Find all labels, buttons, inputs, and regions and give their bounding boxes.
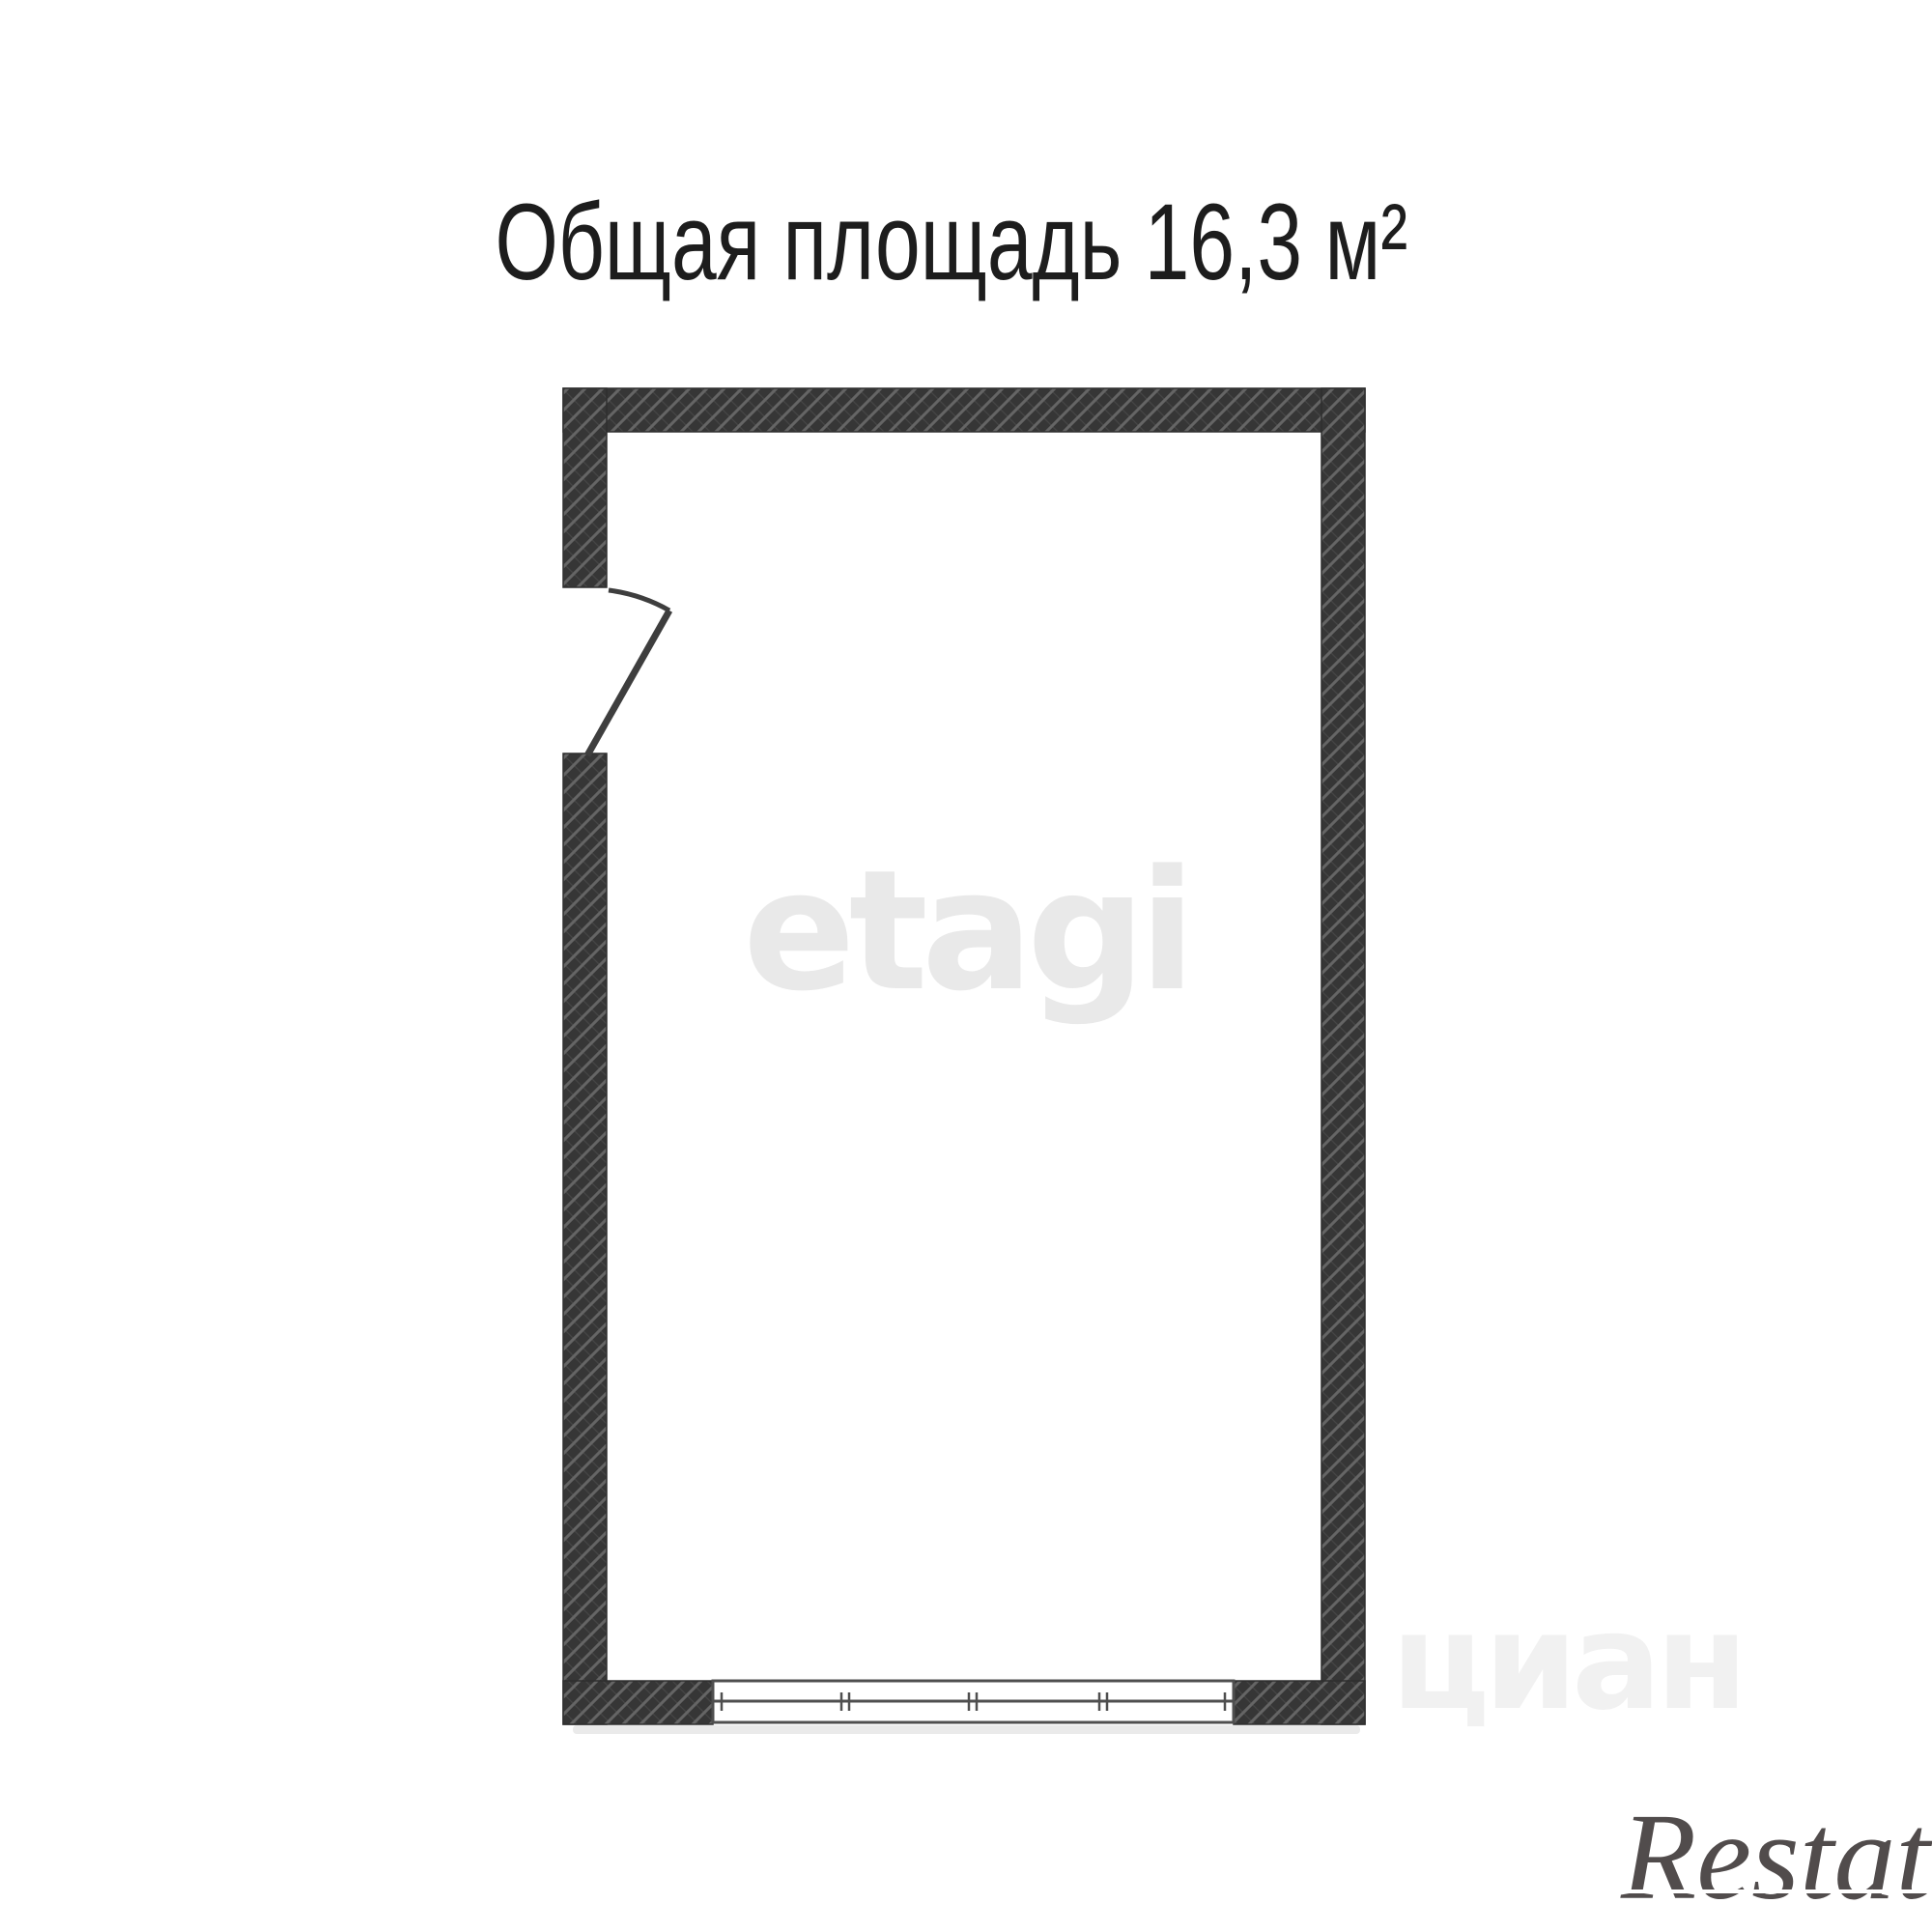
walls	[563, 388, 1365, 1724]
plan-shadow	[573, 1725, 1360, 1734]
wall-right	[1321, 388, 1365, 1724]
wall-top	[563, 388, 1365, 432]
page-title: Общая площадь 16,3 м²	[0, 188, 1918, 297]
wall-bottom-right-segment	[1234, 1681, 1365, 1724]
window	[713, 1681, 1234, 1722]
floor-plan-page: Общая площадь 16,3 м² etagi циан Restate	[0, 0, 1932, 1932]
door	[587, 590, 669, 755]
restate-strike-line	[1584, 1889, 1932, 1893]
door-swing-arc	[609, 590, 669, 611]
restate-watermark: Restate	[1621, 1795, 1932, 1918]
window-frame	[713, 1681, 1234, 1722]
total-area-title: Общая площадь 16,3 м²	[496, 188, 1408, 297]
cian-watermark: циан	[1391, 1596, 1742, 1729]
restate-strike-line	[1584, 1907, 1932, 1911]
wall-left-upper-segment	[563, 388, 607, 587]
etagi-watermark: etagi	[0, 848, 1932, 1014]
wall-bottom-left-segment	[563, 1681, 713, 1724]
door-leaf	[587, 611, 669, 755]
window-mullion-ticks	[722, 1692, 1225, 1711]
